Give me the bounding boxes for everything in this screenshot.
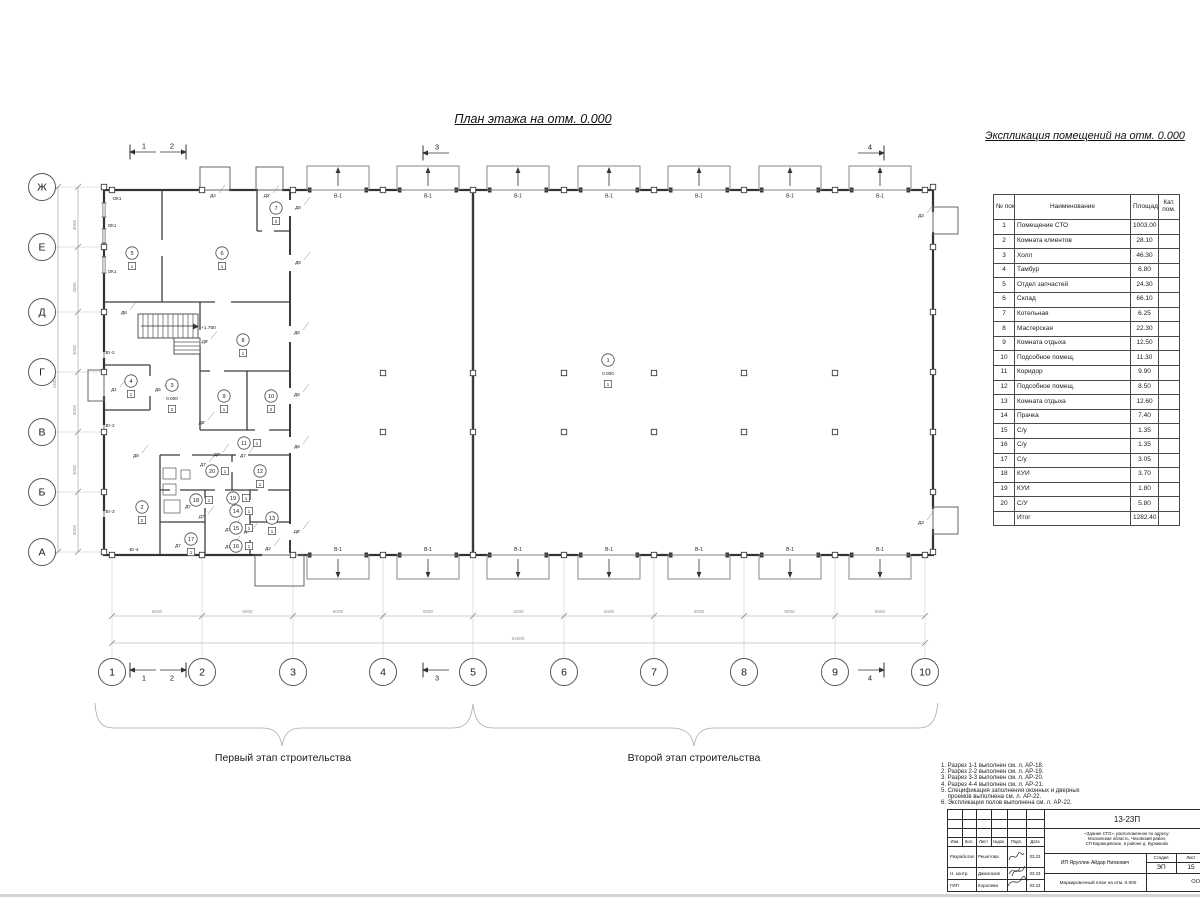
column xyxy=(741,552,746,557)
gate-label: В-1 xyxy=(424,194,432,200)
explication-cell: Отдел запчастей xyxy=(1015,278,1131,293)
section-mark-number: 3 xyxy=(435,143,439,152)
column xyxy=(561,370,566,375)
column xyxy=(651,370,656,375)
gate-label: В-1 xyxy=(876,547,884,553)
explication-cell xyxy=(994,511,1015,526)
sheet-label: Лист xyxy=(1176,853,1200,862)
explication-cell xyxy=(1159,322,1180,337)
column xyxy=(470,429,475,434)
explication-cell: 4 xyxy=(994,263,1015,278)
explication-cell xyxy=(1159,497,1180,512)
column xyxy=(470,187,475,192)
opening-label: Д6' xyxy=(294,529,301,534)
wall-opening xyxy=(148,376,152,396)
door-leader xyxy=(208,506,214,514)
column xyxy=(922,552,927,557)
explication-row: 12Подсобное помещ.8.50 xyxy=(994,380,1180,395)
axis-letter: А xyxy=(38,547,45,559)
explication-cell: С/У xyxy=(1015,497,1131,512)
dim-label: 6000 xyxy=(694,609,705,614)
section-mark-number: 2 xyxy=(170,674,174,683)
title-block-line xyxy=(948,819,1044,820)
elevation-label: 0.000 xyxy=(602,371,614,376)
explication-row: 17С/у3.05 xyxy=(994,453,1180,468)
room-number: 4 xyxy=(129,379,132,385)
dim-label: 6000 xyxy=(423,609,434,614)
opening-label: Вт-2 xyxy=(105,423,115,428)
explication-cell: 2 xyxy=(994,234,1015,249)
room-number: 13 xyxy=(269,516,275,522)
explication-cell xyxy=(1159,453,1180,468)
door-leader xyxy=(304,252,310,260)
gate-arrow-head xyxy=(788,572,793,578)
column xyxy=(741,187,746,192)
client-name: ИП Яруллин Айдар Ниязович xyxy=(1044,853,1146,873)
explication-row: 10Подсобное помещ.11.30 xyxy=(994,351,1180,366)
section-mark-number: 4 xyxy=(868,143,872,152)
wall-opening xyxy=(288,200,292,216)
gate-label: В-1 xyxy=(605,194,613,200)
column xyxy=(101,184,106,189)
title-block-line xyxy=(1044,853,1200,854)
column xyxy=(651,187,656,192)
explication-cell: Итог xyxy=(1015,511,1131,526)
room-number: 9 xyxy=(222,394,225,400)
explication-cell: 6.25 xyxy=(1131,307,1159,322)
explication-row: 5Отдел запчастей24.30 xyxy=(994,278,1180,293)
tb-col-doc: №док. xyxy=(991,837,1007,846)
axis-letter: В xyxy=(38,427,45,439)
column xyxy=(832,552,837,557)
gate-label: В-1 xyxy=(695,194,703,200)
column xyxy=(651,552,656,557)
dim-label: 4000 xyxy=(72,344,77,355)
explication-cell: 1.35 xyxy=(1131,424,1159,439)
explication-table: № пом.НаименованиеПлощадьКат. пом.1Помещ… xyxy=(993,194,1180,526)
axis-number: 8 xyxy=(741,667,747,679)
explication-cell xyxy=(1159,220,1180,235)
explication-cell xyxy=(1159,424,1180,439)
explication-row: Итог1282.40 xyxy=(994,511,1180,526)
column xyxy=(651,429,656,434)
axis-number: 6 xyxy=(561,667,567,679)
room-number: 18 xyxy=(193,498,199,504)
door-leader xyxy=(142,445,148,453)
column xyxy=(832,429,837,434)
tb-col-kol: Кол. xyxy=(962,837,976,846)
wall-opening xyxy=(180,453,192,457)
dim-label: 6000 xyxy=(784,609,795,614)
explication-cell: 3.05 xyxy=(1131,453,1159,468)
explication-cell: Тамбур xyxy=(1015,263,1131,278)
explication-cell: 3.70 xyxy=(1131,468,1159,483)
explication-row: 2Комната клиентов28.10 xyxy=(994,234,1180,249)
dim-label: 6000 xyxy=(333,609,344,614)
opening-label: Д8 xyxy=(295,205,301,210)
explication-cell: 7.40 xyxy=(1131,409,1159,424)
opening-label: Д7 xyxy=(175,543,181,548)
wall-opening xyxy=(288,437,292,453)
explication-cell: 12 xyxy=(994,380,1015,395)
axis-number: 5 xyxy=(470,667,476,679)
explication-cell: С/у xyxy=(1015,438,1131,453)
sign-role: Н. контр. xyxy=(948,867,978,879)
door-leader xyxy=(211,331,217,339)
fixture xyxy=(163,468,176,479)
opening-label: Д7' xyxy=(199,514,206,519)
explication-cell xyxy=(1159,511,1180,526)
explication-cell: 12.50 xyxy=(1131,336,1159,351)
explication-cell: 16 xyxy=(994,438,1015,453)
explication-cell: 22.30 xyxy=(1131,322,1159,337)
column xyxy=(109,552,114,557)
sign-name: Королева xyxy=(976,879,1009,891)
plan-title: План этажа на отм. 0.000 xyxy=(418,112,648,126)
explication-cell xyxy=(1159,395,1180,410)
room-number: 8 xyxy=(241,338,244,344)
explication-cell: Котельная xyxy=(1015,307,1131,322)
sheet-value: 15 xyxy=(1176,862,1200,873)
company-name: ООО "Альп xyxy=(1146,873,1200,891)
explication-cell: 12.60 xyxy=(1131,395,1159,410)
title-block-line xyxy=(948,867,1044,868)
column xyxy=(101,429,106,434)
dim-label: 4000 xyxy=(72,219,77,230)
sign-name: Решетова xyxy=(976,846,1009,867)
explication-cell: Комната отдыха xyxy=(1015,395,1131,410)
explication-cell: 13 xyxy=(994,395,1015,410)
opening-label: ОК1 xyxy=(108,269,117,274)
note-line: 6. Экспликация полов выполнена см. л. АР… xyxy=(941,800,1111,806)
axis-number: 4 xyxy=(380,667,386,679)
opening-label: Д3 xyxy=(918,520,924,525)
column xyxy=(741,429,746,434)
dim-label: 54000 xyxy=(512,636,525,641)
explication-cell: 6.80 xyxy=(1131,263,1159,278)
opening-label: Вт-4 xyxy=(129,547,139,552)
explication-cell: 5 xyxy=(994,278,1015,293)
title-block-line xyxy=(1044,810,1045,891)
axis-number: 2 xyxy=(199,667,205,679)
title-block-line xyxy=(1044,873,1200,874)
explication-cell: 24.30 xyxy=(1131,278,1159,293)
explication-cell: Помещение СТО xyxy=(1015,220,1131,235)
room-number: 17 xyxy=(188,537,194,543)
explication-cell: 3 xyxy=(994,249,1015,264)
explication-cell xyxy=(1159,263,1180,278)
opening-label: Д5 xyxy=(155,387,161,392)
explication-cell: 28.10 xyxy=(1131,234,1159,249)
explication-cell: С/у xyxy=(1015,424,1131,439)
gate-label: В-1 xyxy=(605,547,613,553)
column xyxy=(930,309,935,314)
gate-arrow-head xyxy=(878,572,883,578)
explication-cell: 14 xyxy=(994,409,1015,424)
notes-block: 1. Разрез 1-1 выполнен см. л. АР-18.2. Р… xyxy=(941,763,1111,806)
dim-label: 6000 xyxy=(513,609,524,614)
title-block-line xyxy=(1176,853,1177,873)
explication-cell: 17 xyxy=(994,453,1015,468)
phase-one-label: Первый этап строительства xyxy=(215,752,351,764)
title-block-line xyxy=(948,837,1044,838)
door-leader xyxy=(303,322,309,330)
stage-label: Стадия xyxy=(1146,853,1176,862)
column xyxy=(922,187,927,192)
door-leader xyxy=(274,538,280,546)
room-number: 14 xyxy=(233,509,239,515)
explication-cell: 8.50 xyxy=(1131,380,1159,395)
opening-label: Д6 xyxy=(294,392,300,397)
explication-cell: Прачка xyxy=(1015,409,1131,424)
explication-cell xyxy=(1159,438,1180,453)
stair-elevation-label: +1.760 xyxy=(201,325,216,331)
explication-cell: 66.10 xyxy=(1131,292,1159,307)
column xyxy=(561,187,566,192)
explication-row: 16С/у1.35 xyxy=(994,438,1180,453)
sign-date: 03.23 xyxy=(1026,867,1044,879)
column xyxy=(199,552,204,557)
explication-row: 13Комната отдыха12.60 xyxy=(994,395,1180,410)
tb-col-podp: Подп. xyxy=(1007,837,1026,846)
room-number: 5 xyxy=(130,251,133,257)
title-block-address: «Здание СТО», расположенное по адресу: М… xyxy=(1044,828,1200,856)
wall-opening xyxy=(288,388,292,404)
explication-header-row: № пом.НаименованиеПлощадьКат. пом. xyxy=(994,195,1180,220)
tb-col-data: Дата xyxy=(1026,837,1044,846)
door-leader xyxy=(223,444,229,452)
section-mark-number: 4 xyxy=(868,674,872,683)
opening-label: Д8 xyxy=(121,310,127,315)
opening-label: Д1 xyxy=(111,387,117,392)
opening-label: Вт-2 xyxy=(105,350,115,355)
column xyxy=(290,187,295,192)
explication-cell: 1 xyxy=(994,220,1015,235)
opening-label: Д4 xyxy=(210,193,216,198)
explication-cell xyxy=(1159,409,1180,424)
column xyxy=(101,549,106,554)
fixture xyxy=(164,500,180,513)
opening-label: Д2 xyxy=(265,546,271,551)
title-block-line xyxy=(1146,853,1147,891)
axis-letter: Е xyxy=(38,242,45,254)
dim-label: 4000 xyxy=(72,404,77,415)
explication-row: 3Холл46.30 xyxy=(994,249,1180,264)
opening-label: Д3 xyxy=(918,213,924,218)
explication-cell xyxy=(1159,482,1180,497)
gate-label: В-1 xyxy=(786,547,794,553)
explication-cell: 1.80 xyxy=(1131,482,1159,497)
wall-opening xyxy=(288,524,292,540)
axis-number: 9 xyxy=(832,667,838,679)
axis-letter: Д xyxy=(38,307,45,319)
gate-label: В-1 xyxy=(424,547,432,553)
column xyxy=(101,369,106,374)
gate-label: В-1 xyxy=(876,194,884,200)
room-number: 3 xyxy=(170,383,173,389)
gate-arrow-head xyxy=(336,167,341,173)
porch xyxy=(255,555,304,586)
explication-cell: 9.90 xyxy=(1131,365,1159,380)
title-block-line xyxy=(1146,862,1200,863)
sign-date: 03.23 xyxy=(1026,846,1044,867)
explication-cell: Склад xyxy=(1015,292,1131,307)
explication-cell: 8 xyxy=(994,322,1015,337)
column xyxy=(101,309,106,314)
wall-opening xyxy=(262,229,274,233)
dim-label: 6000 xyxy=(242,609,253,614)
column xyxy=(470,552,475,557)
porch xyxy=(256,167,283,190)
fixture xyxy=(181,470,190,479)
wall-opening xyxy=(230,462,234,472)
column xyxy=(561,429,566,434)
dim-label: 4000 xyxy=(72,464,77,475)
explication-cell: Комната клиентов xyxy=(1015,234,1131,249)
opening-label: Д7 xyxy=(200,462,206,467)
gate-arrow-head xyxy=(697,167,702,173)
column xyxy=(380,429,385,434)
explication-cell: 19 xyxy=(994,482,1015,497)
column xyxy=(380,187,385,192)
stage-value: ЭП xyxy=(1146,862,1176,873)
title-block-line xyxy=(948,828,1200,829)
explication-cell: 15 xyxy=(994,424,1015,439)
explication-cell: Комната отдыха xyxy=(1015,336,1131,351)
title-block: 13-23П «Здание СТО», расположенное по ад… xyxy=(947,809,1200,892)
explication-cell: Холл xyxy=(1015,249,1131,264)
gate-arrow-head xyxy=(607,167,612,173)
gate-arrow-head xyxy=(878,167,883,173)
gate-label: В-1 xyxy=(786,194,794,200)
gate-label: В-1 xyxy=(514,194,522,200)
dim-label: 6000 xyxy=(875,609,886,614)
dim-label: 6000 xyxy=(604,609,615,614)
gate-label: В-1 xyxy=(334,547,342,553)
wall-opening xyxy=(258,488,268,492)
wall-opening xyxy=(215,300,231,304)
gate-arrow-head xyxy=(788,167,793,173)
explication-cell: Мастерская xyxy=(1015,322,1131,337)
opening-label: ОК1 xyxy=(113,196,122,201)
explication-header-cell: Кат. пом. xyxy=(1159,195,1180,220)
elevation-label: 0.000 xyxy=(166,396,178,401)
explication-cell xyxy=(1159,278,1180,293)
column xyxy=(930,489,935,494)
sign-name: Джангазов xyxy=(976,867,1009,879)
title-block-line xyxy=(948,879,1044,880)
column xyxy=(832,370,837,375)
column xyxy=(832,187,837,192)
explication-row: 19КУИ1.80 xyxy=(994,482,1180,497)
explication-cell xyxy=(1159,380,1180,395)
axis-number: 10 xyxy=(919,667,931,679)
explication-row: 20С/У5.80 xyxy=(994,497,1180,512)
gate-arrow-head xyxy=(426,167,431,173)
gate-label: В-1 xyxy=(695,547,703,553)
explication-cell: 1003.00 xyxy=(1131,220,1159,235)
column xyxy=(930,369,935,374)
explication-row: 14Прачка7.40 xyxy=(994,409,1180,424)
phase-brace xyxy=(95,703,473,746)
gate-label: В-1 xyxy=(514,547,522,553)
address-line: СП Баранцевское, в районе д. Курниково xyxy=(1044,841,1200,846)
column xyxy=(470,370,475,375)
room-number: 20 xyxy=(209,469,215,475)
wall-opening xyxy=(255,428,269,432)
door-leader xyxy=(303,521,309,529)
explication-cell: 1.35 xyxy=(1131,438,1159,453)
axis-letter: Ж xyxy=(37,182,47,194)
room-number: 11 xyxy=(241,441,247,447)
opening-label: Д8 xyxy=(133,453,139,458)
explication-row: 7Котельная6.25 xyxy=(994,307,1180,322)
axis-letter: Г xyxy=(39,367,45,379)
wall-opening xyxy=(210,369,224,373)
opening-label: Д7 xyxy=(185,504,191,509)
axis-letter: Б xyxy=(39,487,46,499)
explication-cell: 20 xyxy=(994,497,1015,512)
column xyxy=(380,370,385,375)
wall-opening xyxy=(288,255,292,271)
explication-cell: 6 xyxy=(994,292,1015,307)
gate-arrow-head xyxy=(607,572,612,578)
explication-cell: 10 xyxy=(994,351,1015,366)
explication-cell: 18 xyxy=(994,468,1015,483)
column xyxy=(930,184,935,189)
page-bottom-edge xyxy=(0,894,1200,897)
explication-cell: КУИ xyxy=(1015,482,1131,497)
explication-cell: Коридор xyxy=(1015,365,1131,380)
column xyxy=(561,552,566,557)
column xyxy=(380,552,385,557)
door-leader xyxy=(303,384,309,392)
explication-cell xyxy=(1159,292,1180,307)
column xyxy=(741,370,746,375)
explication-row: 4Тамбур6.80 xyxy=(994,263,1180,278)
opening-label: ОК1 xyxy=(108,223,117,228)
explication-cell xyxy=(1159,351,1180,366)
gate-arrow-head xyxy=(336,572,341,578)
room-number: 15 xyxy=(233,526,239,532)
axis-number: 7 xyxy=(651,667,657,679)
column xyxy=(109,187,114,192)
explication-cell: 5.80 xyxy=(1131,497,1159,512)
axis-number: 1 xyxy=(109,667,115,679)
explication-row: 18КУИ3.70 xyxy=(994,468,1180,483)
room-number: 16 xyxy=(233,544,239,550)
dim-label: 4000 xyxy=(72,282,77,293)
explication-cell xyxy=(1159,234,1180,249)
column xyxy=(101,244,106,249)
porch xyxy=(200,167,230,190)
opening-label: Вт-3 xyxy=(105,509,115,514)
gate-arrow-head xyxy=(426,572,431,578)
explication-row: 1Помещение СТО1003.00 xyxy=(994,220,1180,235)
sign-date: 03.23 xyxy=(1026,879,1044,891)
wall-opening xyxy=(215,488,225,492)
axis-number: 3 xyxy=(290,667,296,679)
explication-header-cell: Площадь xyxy=(1131,195,1159,220)
sign-role: ГИП xyxy=(948,879,978,891)
dim-label: 4000 xyxy=(72,524,77,535)
explication-cell xyxy=(1159,249,1180,264)
phase-brace xyxy=(473,703,938,746)
section-mark-number: 2 xyxy=(170,142,174,151)
explication-cell xyxy=(1159,365,1180,380)
explication-header-cell: № пом. xyxy=(994,195,1015,220)
explication-cell xyxy=(1159,468,1180,483)
